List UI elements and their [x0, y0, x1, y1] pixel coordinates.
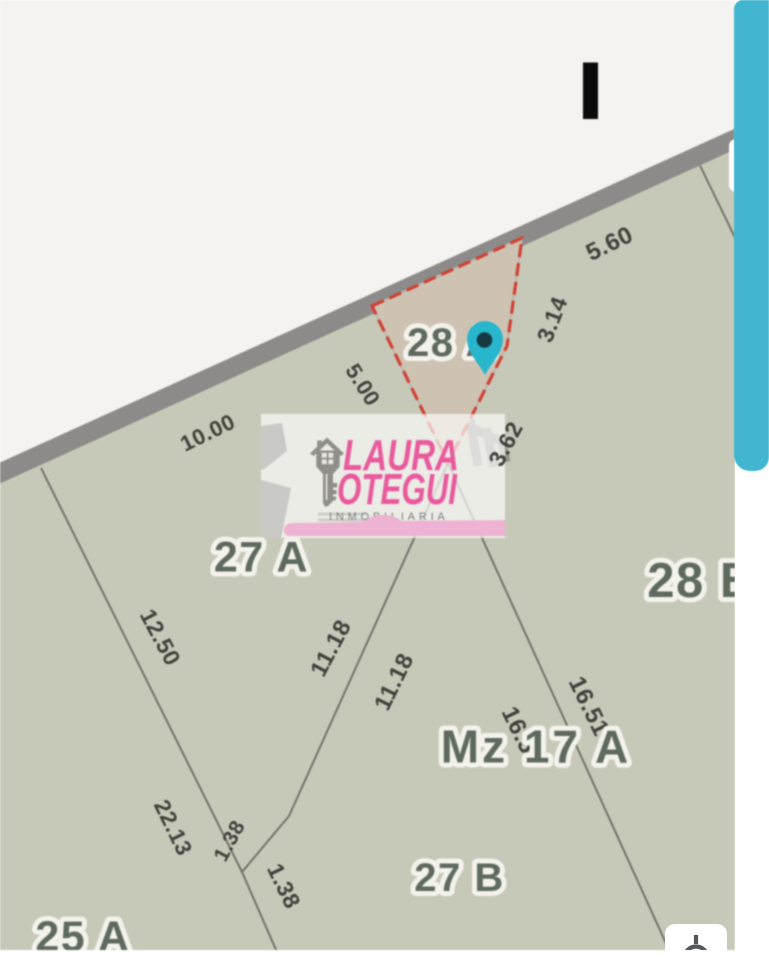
svg-text:27 B: 27 B: [414, 856, 505, 900]
svg-text:Mz 17 A: Mz 17 A: [441, 721, 632, 773]
svg-text:25 A: 25 A: [35, 913, 130, 950]
svg-text:28 B: 28 B: [647, 554, 735, 608]
svg-text:OTEGUI: OTEGUI: [337, 465, 458, 514]
svg-text:27 A: 27 A: [214, 534, 309, 582]
